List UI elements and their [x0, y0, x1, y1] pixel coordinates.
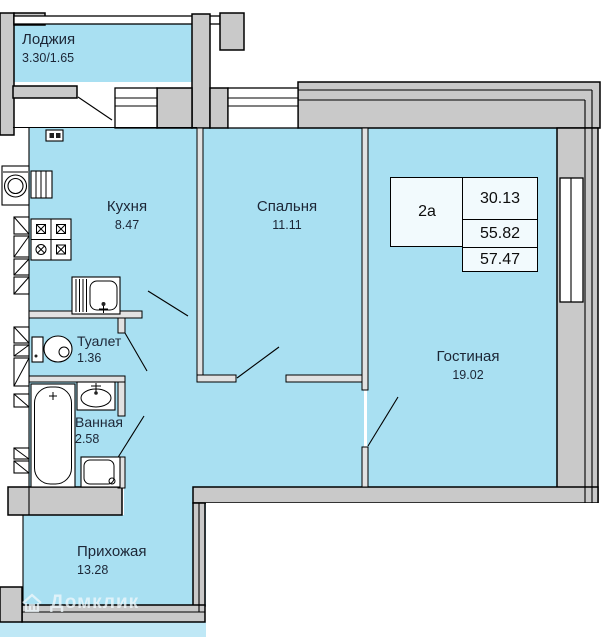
window-bedroom [228, 88, 298, 128]
wall-bedroom-bottom-right [286, 375, 368, 382]
room-area: 19.02 [416, 367, 520, 383]
wall-loggia-right [192, 14, 210, 128]
balcony-door-swing [78, 97, 112, 120]
wall-living-left [362, 128, 368, 390]
loggia-sill [13, 86, 77, 98]
room-name: Ванная [75, 413, 123, 431]
room-name: Лоджия [22, 30, 75, 50]
apartment-area-cell: 55.82 [462, 219, 538, 249]
watermark: Домклик [20, 591, 139, 615]
room-name: Прихожая [77, 542, 147, 562]
room-name: Кухня [77, 197, 177, 217]
window-kitchen [115, 88, 157, 128]
floorplan: Лоджия 3.30/1.65 Кухня 8.47 Спальня 11.1… [0, 0, 605, 637]
room-label-bath: Ванная 2.58 [75, 413, 123, 447]
bath-door-stub-top [118, 382, 125, 416]
bottom-strip [0, 622, 206, 637]
room-area: 13.28 [77, 562, 147, 578]
house-icon [20, 591, 44, 615]
stove-icon [31, 219, 71, 260]
wall-neighbor-pier [220, 13, 244, 50]
living-area-cell: 30.13 [462, 177, 538, 220]
unit-info-table: 2а 30.13 55.82 57.47 [390, 177, 540, 272]
room-label-living: Гостиная 19.02 [416, 347, 520, 383]
wall-bottom-left-block [0, 587, 22, 622]
gas-riser-icon [2, 166, 29, 205]
room-label-bedroom: Спальня 11.11 [237, 197, 337, 233]
room-name: Гостиная [416, 347, 520, 367]
cropped-area [206, 503, 605, 637]
electrical-panel-icon [46, 130, 63, 141]
wall-bedroom-left [197, 128, 203, 378]
wall-pier-2 [210, 88, 228, 128]
washing-machine-icon [81, 457, 120, 487]
room-area: 3.30/1.65 [22, 50, 75, 66]
living-door-stub [362, 447, 368, 487]
wall-bath-bottom [8, 487, 122, 515]
bathtub-icon [31, 384, 75, 487]
total-area-cell: 57.47 [462, 247, 538, 272]
watermark-text: Домклик [50, 592, 139, 614]
room-label-kitchen: Кухня 8.47 [77, 197, 177, 233]
toilet-door-stub [118, 318, 125, 333]
wall-bottom-right [193, 487, 598, 503]
vent-shafts [14, 217, 29, 473]
wall-pier-1 [157, 88, 192, 128]
kitchen-sink-icon [72, 277, 120, 314]
wall-bedroom-bottom-left [197, 375, 236, 382]
room-label-toilet: Туалет 1.36 [77, 332, 121, 366]
room-area: 2.58 [75, 431, 123, 447]
room-label-hall: Прихожая 13.28 [77, 542, 147, 578]
room-area: 8.47 [77, 217, 177, 233]
wall-loggia-left [0, 13, 14, 135]
room-label-loggia: Лоджия 3.30/1.65 [22, 30, 75, 66]
wall-top-right [298, 82, 600, 128]
loggia-rail [14, 16, 220, 24]
bath-sink-icon [77, 382, 115, 410]
room-area: 1.36 [77, 350, 121, 366]
wall-toilet-bath [29, 376, 125, 382]
radiator-icon [31, 171, 52, 198]
unit-number-cell: 2а [390, 177, 464, 247]
room-name: Туалет [77, 332, 121, 350]
room-area: 11.11 [237, 217, 337, 233]
room-name: Спальня [237, 197, 337, 217]
window-living [560, 178, 583, 302]
toilet-icon [32, 336, 72, 362]
